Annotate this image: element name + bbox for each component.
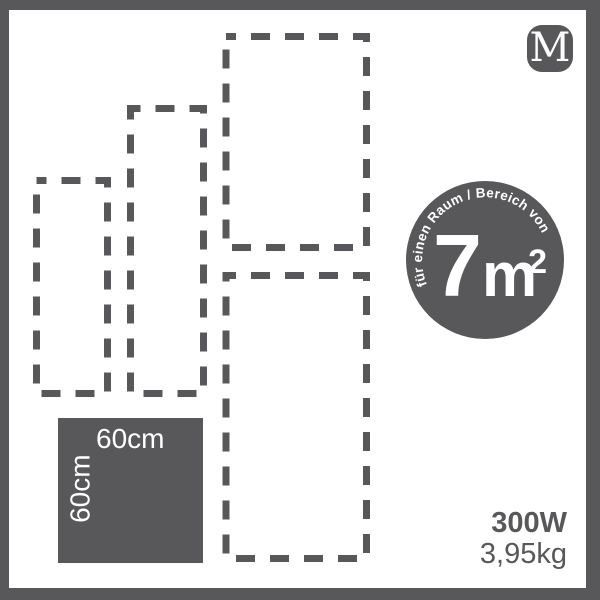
heating-panel-square: 60cm 60cm xyxy=(58,418,203,563)
area-number: 7 xyxy=(433,216,480,315)
coverage-area-value: 7m2 xyxy=(406,222,564,310)
brand-logo-letter: M xyxy=(530,28,571,68)
product-specs: 300W 3,95kg xyxy=(480,508,567,569)
coverage-area-badge: für einen Raum / Bereich von 7m2 xyxy=(406,181,564,339)
power-rating: 300W xyxy=(480,508,567,539)
size-outline-tall-bottom xyxy=(226,276,367,559)
product-weight: 3,95kg xyxy=(480,539,567,570)
product-infographic: 60cm 60cm für einen Raum / Bereich von 7… xyxy=(0,0,600,600)
area-exponent: 2 xyxy=(528,243,547,281)
size-outline-medium xyxy=(131,109,204,394)
panel-height-label: 60cm xyxy=(65,451,94,527)
panel-width-label: 60cm xyxy=(96,424,164,453)
brand-logo-m: M xyxy=(527,25,573,72)
size-outline-small xyxy=(37,181,108,394)
size-outline-tall-top xyxy=(226,37,367,248)
